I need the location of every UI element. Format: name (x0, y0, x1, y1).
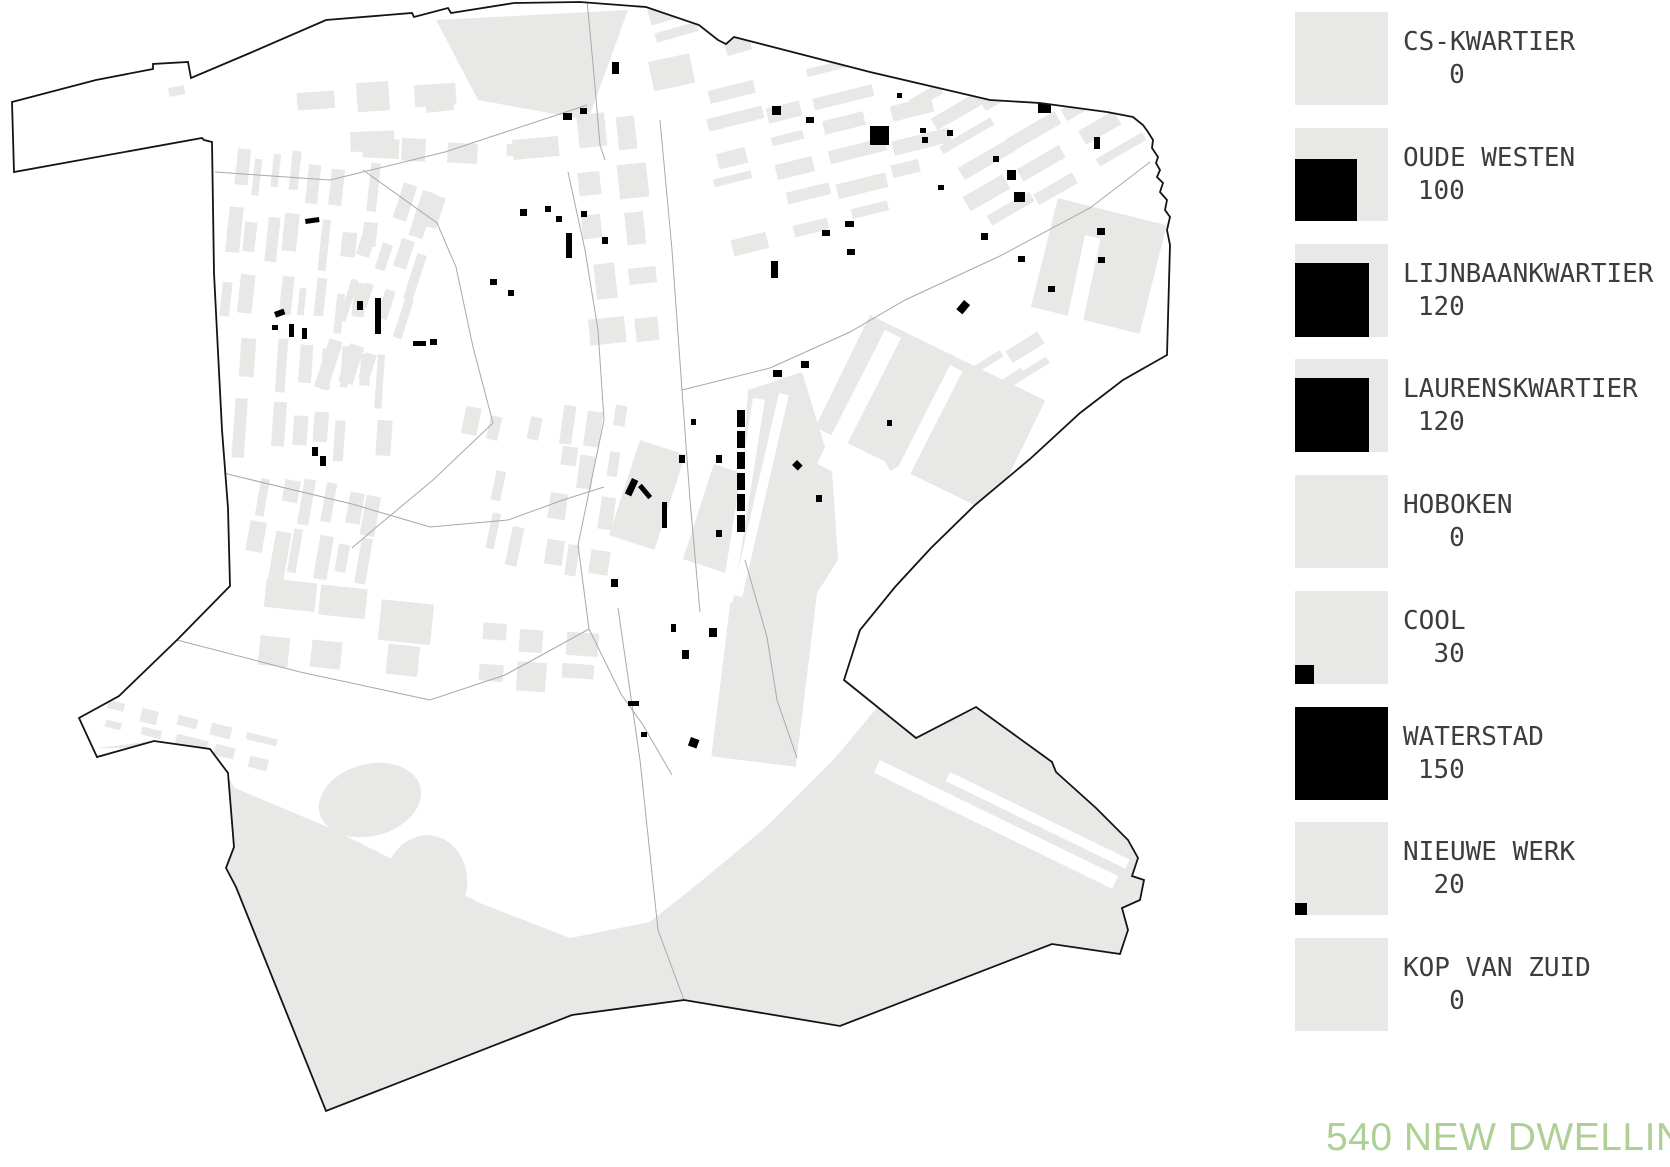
building-block (593, 263, 617, 300)
new-dwelling-mark (938, 185, 944, 190)
building-block (527, 416, 543, 441)
building-block (268, 531, 292, 581)
new-dwelling-mark (628, 701, 639, 706)
district-name: CS-KWARTIER (1403, 26, 1575, 59)
building-block (310, 639, 343, 669)
legend-label: LIJNBAANKWARTIER120 (1403, 258, 1653, 324)
block-cluster (692, 36, 967, 257)
block-cluster (101, 697, 278, 772)
gray-area (436, 10, 628, 120)
building-block (1081, 624, 1124, 656)
building-block (345, 491, 365, 524)
building-block (305, 164, 321, 204)
legend-label: CS-KWARTIER0 (1403, 26, 1575, 92)
new-dwelling-mark (508, 290, 514, 296)
building-block (1045, 70, 1085, 102)
new-dwelling-mark (566, 233, 572, 258)
legend-item-lijnbaankwartier: LIJNBAANKWARTIER120 (1295, 244, 1670, 344)
new-dwelling-mark (671, 624, 676, 632)
building-block (516, 661, 547, 692)
building-block (313, 412, 329, 443)
building-block (318, 219, 331, 271)
new-dwelling-mark (581, 211, 587, 217)
new-dwelling-mark (847, 249, 855, 255)
building-block (577, 171, 601, 196)
district-boundary-line (223, 473, 604, 527)
building-block (318, 584, 368, 619)
new-dwelling-mark (490, 279, 497, 285)
district-area-swatch (1295, 822, 1388, 915)
new-dwelling-mark (737, 515, 745, 532)
new-dwelling-mark (688, 737, 700, 749)
building-block (655, 22, 699, 43)
gray-mass (648, 53, 695, 91)
new-dwelling-mark (771, 261, 778, 278)
building-block (374, 354, 385, 409)
new-dwelling-mark (1048, 286, 1055, 292)
building-block (105, 719, 122, 730)
new-dwellings-swatch (1295, 665, 1314, 684)
new-dwelling-mark (274, 309, 285, 318)
building-block (414, 83, 457, 108)
building-block (246, 732, 278, 746)
new-dwelling-mark (845, 221, 854, 227)
building-block (774, 156, 815, 180)
building-block (375, 242, 393, 271)
new-dwelling-mark (772, 106, 781, 115)
building-block (298, 344, 313, 383)
new-dwelling-mark (737, 410, 745, 427)
building-block (628, 266, 657, 285)
new-dwelling-mark (641, 732, 647, 737)
new-dwelling-mark (611, 579, 618, 587)
new-dwelling-mark (981, 233, 988, 240)
legend-label: OUDE WESTEN100 (1403, 142, 1575, 208)
district-dwelling-count: 120 (1418, 291, 1465, 324)
legend-label: WATERSTAD150 (1403, 721, 1544, 787)
building-block (962, 44, 1016, 81)
district-name: KOP VAN ZUID (1403, 952, 1591, 985)
building-block (588, 549, 611, 575)
new-dwelling-mark (413, 341, 426, 346)
legend-item-cs-kwartier: CS-KWARTIER0 (1295, 12, 1670, 112)
district-name: LIJNBAANKWARTIER (1403, 258, 1653, 291)
new-dwelling-mark (887, 420, 892, 426)
building-block (1017, 145, 1066, 181)
district-dwelling-count: 0 (1418, 985, 1465, 1018)
district-name: COOL (1403, 605, 1466, 638)
building-block (708, 6, 747, 32)
building-block (812, 84, 874, 110)
building-block (234, 148, 251, 185)
building-block (713, 170, 752, 187)
district-dwelling-count: 0 (1418, 522, 1465, 555)
new-dwelling-mark (320, 456, 326, 466)
new-dwelling-mark (716, 455, 722, 463)
block-cluster (567, 109, 665, 348)
building-block (313, 535, 334, 581)
new-dwelling-mark (822, 230, 830, 236)
new-dwelling-mark (563, 113, 572, 120)
block-cluster (907, 0, 1190, 236)
building-block (245, 520, 267, 553)
building-block (140, 726, 162, 739)
building-block (785, 182, 831, 204)
page: CS-KWARTIER0OUDE WESTEN100LIJNBAANKWARTI… (0, 0, 1670, 1167)
building-block (1115, 581, 1149, 607)
new-dwelling-mark (737, 473, 745, 490)
building-block (314, 338, 343, 390)
building-block (731, 232, 770, 257)
building-block (393, 182, 418, 221)
new-dwelling-mark (1094, 137, 1100, 149)
city-fabric (97, 0, 1190, 1111)
building-block (583, 411, 603, 448)
new-dwellings-swatch (1295, 903, 1307, 915)
building-block (251, 159, 262, 196)
district-area-swatch (1295, 244, 1388, 337)
building-block (231, 398, 247, 458)
building-block (978, 77, 1021, 111)
district-dwelling-count: 30 (1418, 638, 1465, 671)
building-block (708, 80, 756, 104)
building-block (822, 111, 866, 135)
new-dwelling-mark (816, 495, 822, 502)
new-dwelling-mark (430, 339, 437, 345)
building-block (447, 142, 478, 163)
building-block (835, 172, 888, 199)
building-block (1028, 45, 1068, 75)
legend-item-oude-westen: OUDE WESTEN100 (1295, 128, 1670, 228)
building-block (564, 544, 579, 576)
new-dwelling-mark (716, 530, 722, 537)
new-dwelling-mark (838, 56, 844, 62)
district-name: WATERSTAD (1403, 721, 1544, 754)
building-block (258, 635, 291, 668)
new-dwelling-mark (920, 128, 926, 133)
building-block (647, 0, 704, 25)
building-block (560, 446, 578, 467)
building-block (362, 138, 399, 159)
district-name: HOBOKEN (1403, 489, 1513, 522)
building-block (239, 338, 256, 378)
legend: CS-KWARTIER0OUDE WESTEN100LIJNBAANKWARTI… (1295, 0, 1670, 1060)
building-block (482, 622, 507, 640)
building-block (320, 482, 337, 523)
building-block (248, 756, 269, 772)
new-dwelling-mark (545, 206, 551, 212)
building-block (566, 632, 600, 657)
building-block (328, 169, 345, 206)
new-dwelling-mark (922, 137, 928, 143)
new-dwelling-mark (580, 108, 587, 114)
district-area-swatch (1295, 707, 1388, 800)
gray-mass (168, 85, 185, 97)
building-block (624, 211, 646, 245)
building-block (490, 470, 506, 501)
building-block (177, 715, 199, 730)
building-block (766, 100, 803, 123)
street-cut (1002, 679, 1128, 747)
legend-item-waterstad: WATERSTAD150 (1295, 707, 1670, 807)
building-block (225, 206, 244, 253)
district-dwelling-count: 0 (1418, 59, 1465, 92)
district-name: OUDE WESTEN (1403, 142, 1575, 175)
new-dwelling-mark (897, 93, 902, 98)
new-dwelling-mark (1014, 192, 1025, 202)
new-dwellings-swatch (1295, 707, 1388, 800)
building-block (519, 629, 544, 653)
new-dwelling-mark (272, 325, 278, 330)
building-block (1097, 561, 1138, 589)
building-block (716, 147, 748, 170)
building-block (1100, 27, 1157, 66)
building-block (505, 526, 525, 567)
building-block (1167, 585, 1190, 608)
building-block (264, 217, 280, 262)
city-map-svg (0, 0, 1190, 1167)
block-cluster (646, 0, 985, 74)
new-dwellings-swatch (1295, 378, 1369, 452)
new-dwelling-mark (691, 419, 696, 425)
building-block (1096, 132, 1147, 166)
building-block (851, 200, 890, 219)
building-block (314, 278, 328, 317)
new-dwelling-mark (679, 455, 685, 463)
building-block (863, 37, 924, 62)
new-dwelling-mark (1097, 228, 1105, 235)
new-dwelling-mark (773, 370, 782, 377)
building-block (1148, 111, 1181, 135)
building-block (237, 274, 256, 314)
new-dwelling-mark (993, 156, 999, 162)
building-block (279, 276, 295, 316)
building-block (292, 415, 308, 445)
building-block (771, 130, 804, 146)
new-dwelling-mark (801, 361, 809, 368)
building-block (289, 150, 302, 190)
legend-item-laurenskwartier: LAURENSKWARTIER120 (1295, 359, 1670, 459)
building-block (1151, 563, 1185, 591)
building-block (806, 56, 862, 77)
gray-mass (1031, 198, 1167, 334)
building-block (616, 116, 638, 151)
building-block (174, 734, 208, 754)
legend-label: KOP VAN ZUID0 (1403, 952, 1591, 1018)
building-block (485, 512, 501, 549)
legend-label: LAURENSKWARTIER120 (1403, 373, 1638, 439)
building-block (634, 317, 659, 343)
district-dwelling-count: 100 (1418, 175, 1465, 208)
building-block (506, 144, 531, 157)
district-dwelling-count: 20 (1418, 869, 1465, 902)
district-area-swatch (1295, 128, 1388, 221)
building-block (544, 539, 565, 566)
park-blob (365, 1029, 411, 1063)
building-block (613, 405, 627, 427)
legend-item-cool: COOL30 (1295, 591, 1670, 691)
legend-label: HOBOKEN0 (1403, 489, 1513, 555)
building-block (561, 663, 594, 680)
building-block (1075, 601, 1116, 630)
district-area-swatch (1295, 475, 1388, 568)
building-block (1089, 5, 1133, 35)
building-block (297, 288, 306, 316)
building-block (275, 338, 288, 392)
new-dwelling-mark (709, 628, 717, 637)
building-block (297, 90, 335, 110)
district-area-swatch (1295, 591, 1388, 684)
building-block (890, 159, 920, 178)
building-block (962, 174, 1010, 211)
building-block (219, 282, 232, 317)
new-dwelling-mark (662, 502, 667, 528)
district-boundary-line (352, 423, 493, 548)
building-block (340, 232, 357, 258)
district-name: LAURENSKWARTIER (1403, 373, 1638, 406)
building-block (333, 420, 346, 461)
building-block (831, 0, 878, 18)
new-dwelling-mark (737, 494, 745, 511)
district-area-swatch (1295, 938, 1388, 1031)
building-block (706, 105, 764, 131)
building-block (393, 238, 415, 270)
new-dwelling-mark (305, 217, 320, 224)
building-block (356, 81, 390, 112)
new-dwelling-mark (947, 130, 953, 136)
legend-item-hoboken: HOBOKEN0 (1295, 475, 1670, 575)
building-block (607, 451, 620, 477)
new-dwelling-mark (520, 209, 527, 216)
new-dwelling-mark (612, 62, 619, 74)
new-dwellings-swatch (1295, 263, 1369, 337)
new-dwelling-mark (737, 431, 745, 448)
legend-item-nieuwe-werk: NIEUWE WERK20 (1295, 822, 1670, 922)
new-dwellings-swatch (1295, 159, 1357, 221)
building-block (264, 578, 318, 612)
new-dwelling-mark (357, 301, 363, 310)
new-dwelling-mark (737, 452, 745, 469)
district-area-swatch (1295, 12, 1388, 105)
building-block (242, 222, 257, 253)
district-dwelling-count: 150 (1418, 754, 1465, 787)
new-dwelling-mark (1098, 257, 1105, 263)
new-dwelling-mark (806, 117, 814, 123)
new-dwelling-mark (956, 300, 970, 314)
legend-label: NIEUWE WERK20 (1403, 836, 1575, 902)
legend-label: COOL30 (1403, 605, 1466, 671)
building-block (1178, 594, 1190, 629)
new-dwelling-mark (1007, 170, 1016, 180)
new-dwelling-mark (682, 650, 689, 659)
building-block (366, 163, 381, 212)
building-block (270, 154, 281, 188)
district-area-swatch (1295, 359, 1388, 452)
building-block (1022, 357, 1050, 379)
building-block (588, 316, 627, 346)
building-block (401, 138, 426, 162)
building-block (1024, 16, 1068, 47)
building-block (547, 492, 568, 520)
building-block (378, 599, 434, 645)
new-dwelling-mark (556, 216, 562, 222)
building-block (1099, 651, 1128, 675)
building-block (1005, 332, 1044, 364)
building-block (393, 299, 414, 340)
building-block (139, 708, 159, 725)
new-dwelling-mark (602, 237, 608, 244)
city-map (0, 0, 1190, 1167)
block-cluster (436, 402, 548, 566)
new-dwelling-mark (375, 298, 381, 334)
building-block (281, 213, 300, 252)
building-block (1006, 111, 1062, 151)
building-block (1064, 0, 1099, 18)
building-block (385, 644, 420, 677)
block-cluster (241, 470, 382, 595)
new-dwelling-mark (289, 324, 294, 337)
building-block (334, 543, 350, 572)
building-block (617, 162, 650, 199)
legend-item-kop-van-zuid: KOP VAN ZUID0 (1295, 938, 1670, 1038)
new-dwelling-mark (302, 328, 307, 339)
building-block (1065, 578, 1109, 609)
new-dwelling-mark (312, 447, 318, 456)
building-block (1033, 172, 1078, 205)
new-dwelling-mark (870, 126, 889, 145)
building-block (271, 401, 287, 446)
block-cluster (1058, 532, 1190, 678)
building-block (375, 420, 392, 456)
building-block (209, 723, 232, 740)
building-block (704, 0, 763, 8)
building-block (581, 214, 603, 240)
building-block (576, 112, 607, 148)
district-dwelling-count: 120 (1418, 406, 1465, 439)
district-name: NIEUWE WERK (1403, 836, 1575, 869)
new-dwelling-mark (1018, 256, 1025, 262)
block-cluster (540, 397, 631, 581)
total-dwellings-caption: 540 NEW DWELLINGS (1326, 1116, 1670, 1160)
building-block (354, 537, 373, 584)
building-block (461, 406, 482, 437)
building-block (559, 405, 576, 445)
block-cluster (258, 578, 435, 682)
